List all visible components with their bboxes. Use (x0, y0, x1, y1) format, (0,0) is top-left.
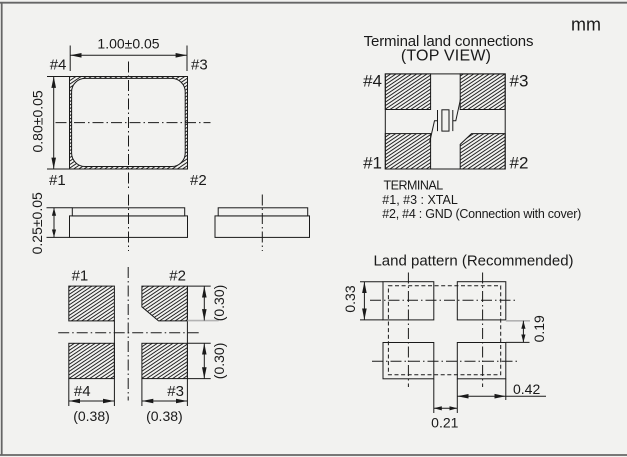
svg-text:#2, #4 : GND (Connection with: #2, #4 : GND (Connection with cover) (382, 207, 581, 221)
svg-text:(0.38): (0.38) (146, 408, 183, 424)
svg-text:#1: #1 (49, 172, 66, 189)
svg-text:#1: #1 (363, 154, 382, 173)
svg-text:0.80±0.05: 0.80±0.05 (30, 90, 46, 152)
svg-text:#4: #4 (50, 56, 67, 73)
svg-text:#3: #3 (510, 72, 529, 91)
svg-text:#2: #2 (510, 154, 529, 173)
svg-text:0.25±0.05: 0.25±0.05 (29, 192, 45, 254)
svg-text:(0.30): (0.30) (211, 285, 227, 322)
svg-text:(0.38): (0.38) (73, 408, 110, 424)
svg-text:#1: #1 (72, 268, 89, 285)
svg-text:#3: #3 (167, 383, 184, 400)
svg-text:0.19: 0.19 (531, 315, 547, 342)
svg-text:(0.30): (0.30) (211, 343, 227, 380)
svg-text:mm: mm (571, 15, 601, 35)
svg-text:0.21: 0.21 (431, 414, 458, 430)
svg-text:TERMINAL: TERMINAL (384, 179, 444, 193)
svg-text:#2: #2 (190, 172, 207, 189)
svg-text:Land pattern (Recommended): Land pattern (Recommended) (373, 253, 573, 270)
svg-text:#3: #3 (191, 56, 208, 73)
svg-text:0.33: 0.33 (342, 285, 358, 312)
svg-text:#2: #2 (169, 268, 186, 285)
svg-text:0.42: 0.42 (513, 381, 540, 397)
svg-text:(TOP VIEW): (TOP VIEW) (401, 47, 491, 64)
svg-text:1.00±0.05: 1.00±0.05 (97, 35, 159, 51)
svg-text:#1, #3 : XTAL: #1, #3 : XTAL (382, 193, 458, 207)
svg-text:#4: #4 (363, 72, 382, 91)
svg-text:#4: #4 (74, 383, 91, 400)
